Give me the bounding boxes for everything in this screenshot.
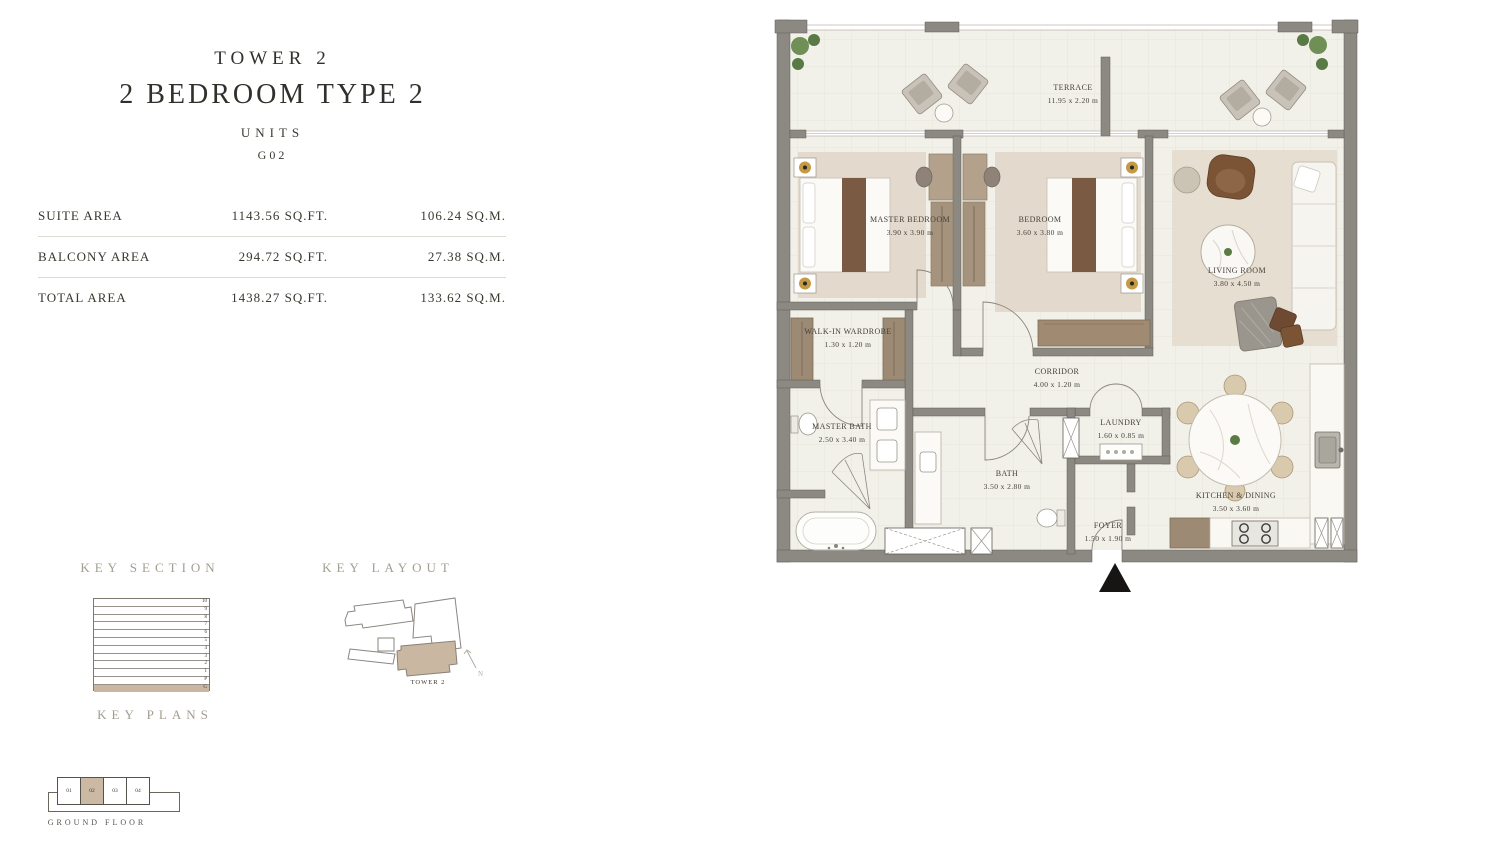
- bath-counter: [915, 432, 941, 524]
- area-row-label: TOTAL AREA: [38, 290, 188, 306]
- area-row-label: SUITE AREA: [38, 208, 188, 224]
- ground-floor-strip: 01 02 03 04: [58, 777, 150, 805]
- site-building-upper-left: [345, 600, 413, 628]
- area-sqm-value: 106.24 SQ.M.: [328, 208, 506, 224]
- room-label-living-room: LIVING ROOM 3.80 x 4.50 m: [1208, 265, 1266, 290]
- site-tower2-label: TOWER 2: [411, 679, 446, 686]
- ground-floor-label: GROUND FLOOR: [48, 818, 146, 827]
- level-row: 3: [94, 653, 209, 661]
- room-label-foyer: FOYER 1.50 x 1.90 m: [1085, 520, 1132, 545]
- level-row: 4: [94, 645, 209, 653]
- units-label: UNITS: [30, 125, 515, 141]
- room-label-bath: BATH 3.50 x 2.80 m: [984, 468, 1031, 493]
- sink: [920, 452, 936, 472]
- area-sqm-value: 133.62 SQ.M.: [328, 290, 506, 306]
- living-armchair: [1205, 153, 1256, 201]
- desk: [963, 154, 987, 200]
- desk: [929, 154, 953, 200]
- north-arrow-line: [467, 651, 476, 668]
- floor-plan: TERRACE 11.95 x 2.20 m MASTER BEDROOM 3.…: [770, 12, 1365, 597]
- desk-chair: [916, 167, 932, 187]
- sink: [877, 440, 897, 462]
- kitchen-sink: [1315, 432, 1344, 468]
- room-label-corridor: CORRIDOR 4.00 x 1.20 m: [1034, 366, 1081, 391]
- site-small-block: [378, 638, 394, 651]
- key-layout-diagram: TOWER 2 N: [333, 594, 483, 689]
- floor-hatches: [885, 528, 992, 554]
- laundry-appliance: [1100, 444, 1142, 460]
- key-section-heading: KEY SECTION: [80, 560, 219, 576]
- room-label-terrace: TERRACE 11.95 x 2.20 m: [1048, 82, 1099, 107]
- desk-chair: [984, 167, 1000, 187]
- nightstand-lamp: [794, 158, 816, 177]
- bed-runner: [842, 178, 866, 272]
- room-label-bedroom: BEDROOM 3.60 x 3.80 m: [1017, 214, 1064, 239]
- unit-cell: 03: [103, 777, 127, 805]
- sink: [877, 408, 897, 430]
- table-row: TOTAL AREA 1438.27 SQ.FT. 133.62 SQ.M.: [38, 277, 506, 318]
- level-row: 1: [94, 668, 209, 676]
- nightstand-lamp: [1121, 274, 1143, 293]
- unit-number: G02: [30, 148, 515, 163]
- unit-cell: 04: [126, 777, 150, 805]
- key-plans-heading: KEY PLANS: [97, 707, 213, 723]
- side-table: [1174, 167, 1200, 193]
- unit-cell-highlighted: 02: [80, 777, 104, 805]
- title-block: TOWER 2 2 BEDROOM TYPE 2: [30, 48, 515, 111]
- level-row: 5: [94, 637, 209, 645]
- level-row: 6: [94, 629, 209, 637]
- level-row: 9: [94, 606, 209, 614]
- tower-name: TOWER 2: [30, 48, 515, 70]
- key-section-diagram: 10 9 8 7 6 5 4 3 2 1 P G: [93, 598, 210, 691]
- terrace-side-table: [935, 104, 953, 122]
- level-row-highlighted: G: [94, 684, 209, 692]
- site-tower2-highlight: [397, 641, 457, 676]
- page-title: 2 BEDROOM TYPE 2: [30, 79, 515, 111]
- bed-runner: [1072, 178, 1096, 272]
- stove: [1232, 521, 1278, 546]
- room-label-walk-in-wardrobe: WALK-IN WARDROBE 1.30 x 1.20 m: [804, 326, 891, 351]
- room-label-master-bedroom: MASTER BEDROOM 3.90 x 3.90 m: [870, 214, 950, 239]
- table-plant: [1230, 435, 1240, 445]
- key-layout-heading: KEY LAYOUT: [322, 560, 454, 576]
- level-row: P: [94, 676, 209, 684]
- brochure-page: TOWER 2 2 BEDROOM TYPE 2 UNITS G02 SUITE…: [0, 0, 1500, 843]
- level-row: 2: [94, 660, 209, 668]
- area-sqft-value: 294.72 SQ.FT.: [188, 249, 328, 265]
- north-label: N: [478, 670, 483, 678]
- toilet: [1037, 509, 1057, 527]
- entry-arrow: [1099, 563, 1131, 592]
- area-sqft-value: 1438.27 SQ.FT.: [188, 290, 328, 306]
- room-label-kitchen-dining: KITCHEN & DINING 3.50 x 3.60 m: [1196, 490, 1276, 515]
- level-row: 10: [94, 599, 209, 606]
- table-row: SUITE AREA 1143.56 SQ.FT. 106.24 SQ.M.: [38, 196, 506, 236]
- level-row: 7: [94, 621, 209, 629]
- room-label-laundry: LAUNDRY 1.60 x 0.85 m: [1098, 417, 1145, 442]
- kitchen-counter-wood: [1170, 518, 1210, 548]
- terrace-side-table: [1253, 108, 1271, 126]
- unit-cell: 01: [57, 777, 81, 805]
- area-sqft-value: 1143.56 SQ.FT.: [188, 208, 328, 224]
- room-label-master-bath: MASTER BATH 2.50 x 3.40 m: [812, 421, 872, 446]
- brown-pillow: [1280, 324, 1304, 348]
- nightstand-lamp: [1121, 158, 1143, 177]
- area-row-label: BALCONY AREA: [38, 249, 188, 265]
- level-row: 8: [94, 614, 209, 622]
- area-table: SUITE AREA 1143.56 SQ.FT. 106.24 SQ.M. B…: [38, 196, 506, 318]
- duct-shaft: [1063, 418, 1079, 458]
- table-row: BALCONY AREA 294.72 SQ.FT. 27.38 SQ.M.: [38, 236, 506, 277]
- table-plant: [1224, 248, 1232, 256]
- area-sqm-value: 27.38 SQ.M.: [328, 249, 506, 265]
- nightstand-lamp: [794, 274, 816, 293]
